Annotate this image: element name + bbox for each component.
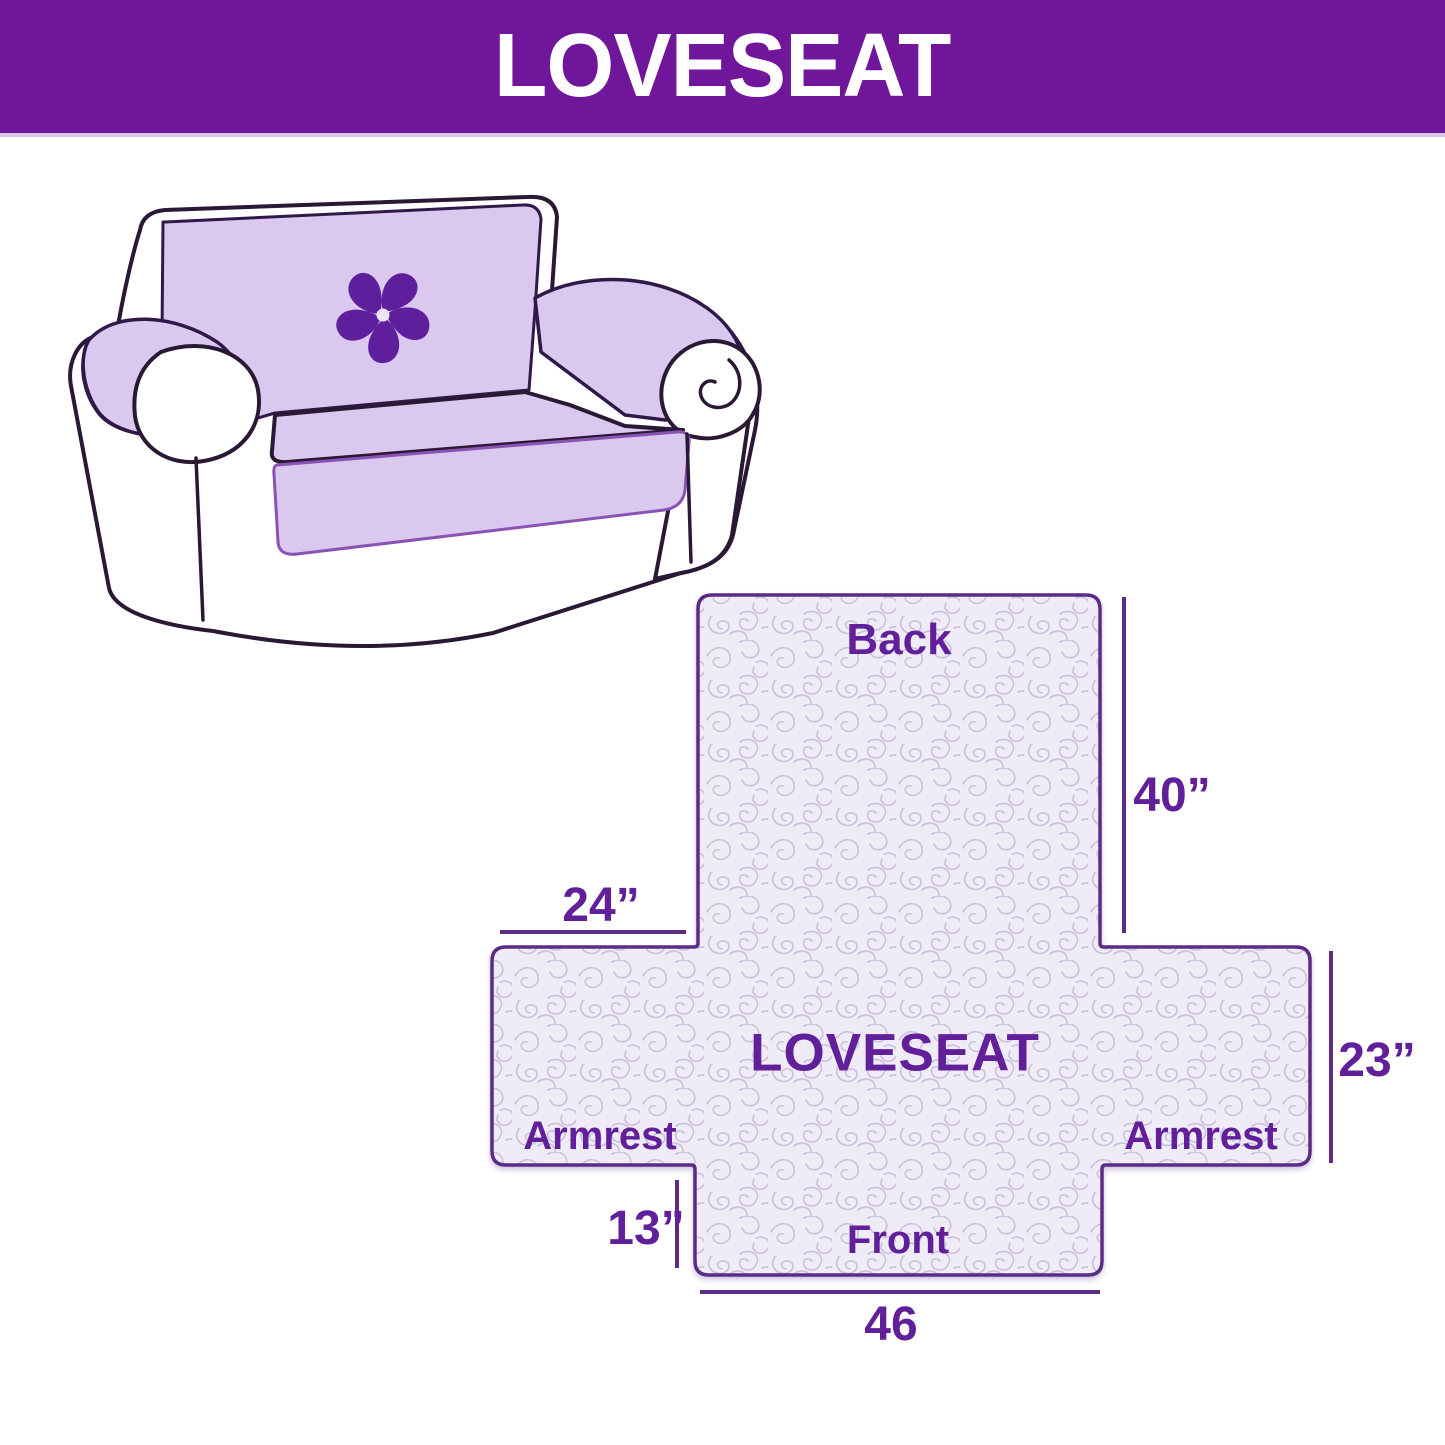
cover-cross-shape — [492, 595, 1310, 1275]
armrest-left-label: Armrest — [523, 1116, 676, 1156]
sofa-left-arm-roll — [134, 346, 259, 462]
page: LOVESEAT — [0, 0, 1445, 1445]
page-title: LOVESEAT — [494, 15, 950, 118]
dim-back-width: 24” — [562, 882, 639, 930]
back-label: Back — [846, 618, 951, 662]
dim-front-width: 46 — [864, 1301, 917, 1349]
front-label: Front — [847, 1220, 949, 1260]
dim-back-length: 40” — [1133, 772, 1210, 820]
dim-side-depth: 23” — [1338, 1037, 1415, 1085]
armrest-right-label: Armrest — [1124, 1116, 1277, 1156]
diagram-center-label: LOVESEAT — [750, 1027, 1040, 1080]
sofa-right-arm-scroll — [661, 341, 759, 438]
header-banner: LOVESEAT — [0, 0, 1445, 137]
dim-front-flap-drop: 13” — [607, 1205, 684, 1253]
